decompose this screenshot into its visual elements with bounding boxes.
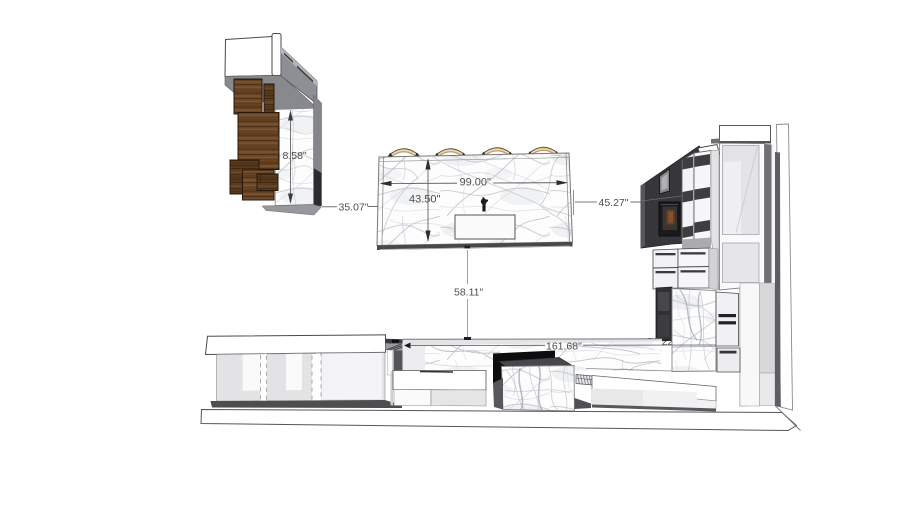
svg-text:45.27": 45.27" — [599, 197, 629, 209]
svg-text:161.68": 161.68" — [546, 340, 582, 352]
svg-text:99.00": 99.00" — [460, 177, 492, 189]
svg-text:58.11": 58.11" — [454, 287, 483, 299]
svg-text:35.07": 35.07" — [339, 202, 369, 214]
svg-text:8.58": 8.58" — [283, 150, 307, 162]
svg-text:43.50": 43.50" — [409, 194, 441, 206]
